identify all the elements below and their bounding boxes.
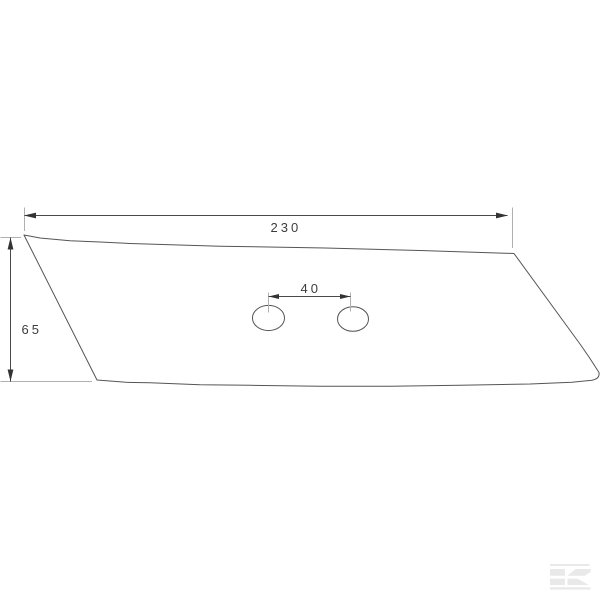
svg-text:230: 230 bbox=[271, 220, 302, 235]
svg-text:40: 40 bbox=[301, 281, 321, 296]
svg-text:65: 65 bbox=[22, 322, 42, 337]
